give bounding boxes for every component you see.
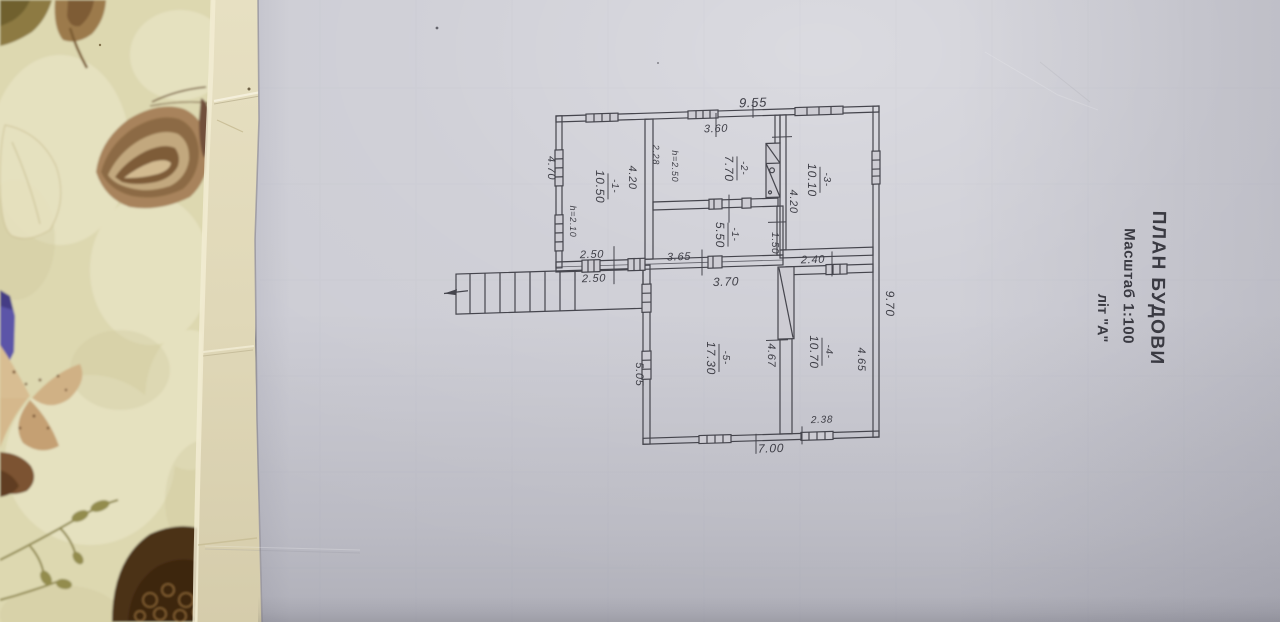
svg-text:7.00: 7.00 xyxy=(758,441,784,456)
svg-text:2.28: 2.28 xyxy=(651,144,661,166)
svg-text:2.50: 2.50 xyxy=(579,249,604,262)
svg-text:10.10: 10.10 xyxy=(805,163,819,197)
svg-text:ПЛАН БУДОВИ: ПЛАН БУДОВИ xyxy=(1146,211,1169,366)
svg-text:4.70: 4.70 xyxy=(545,156,557,181)
svg-text:-2-: -2- xyxy=(738,161,749,176)
svg-text:Масштаб 1:100: Масштаб 1:100 xyxy=(1119,228,1138,344)
svg-text:літ "А": літ "А" xyxy=(1094,294,1111,343)
svg-text:h=2.10: h=2.10 xyxy=(568,205,578,237)
svg-text:10.50: 10.50 xyxy=(593,170,607,204)
svg-text:1.50: 1.50 xyxy=(769,232,780,255)
svg-text:-5-: -5- xyxy=(720,350,731,365)
svg-text:3.60: 3.60 xyxy=(704,123,728,136)
svg-text:4.20: 4.20 xyxy=(626,165,638,190)
svg-text:2.50: 2.50 xyxy=(581,272,606,285)
svg-text:3.65: 3.65 xyxy=(667,251,691,264)
svg-text:-1-: -1- xyxy=(609,179,620,194)
svg-text:10.70: 10.70 xyxy=(807,335,821,369)
svg-text:4.67: 4.67 xyxy=(765,343,777,368)
svg-text:-1-: -1- xyxy=(729,227,740,242)
svg-text:2.40: 2.40 xyxy=(800,254,825,267)
svg-text:-4-: -4- xyxy=(823,344,834,359)
svg-text:7.70: 7.70 xyxy=(722,155,736,182)
svg-text:h=2.50: h=2.50 xyxy=(670,150,680,182)
svg-text:5.05: 5.05 xyxy=(633,362,645,387)
svg-text:4.65: 4.65 xyxy=(855,347,867,372)
svg-text:3.70: 3.70 xyxy=(713,274,739,289)
svg-text:-3-: -3- xyxy=(821,172,832,187)
svg-text:4.20: 4.20 xyxy=(787,189,799,214)
svg-text:9.55: 9.55 xyxy=(739,94,767,110)
svg-text:9.70: 9.70 xyxy=(883,290,897,317)
svg-text:17.30: 17.30 xyxy=(704,341,718,375)
svg-text:2.38: 2.38 xyxy=(810,414,833,426)
svg-text:5.50: 5.50 xyxy=(713,222,727,249)
